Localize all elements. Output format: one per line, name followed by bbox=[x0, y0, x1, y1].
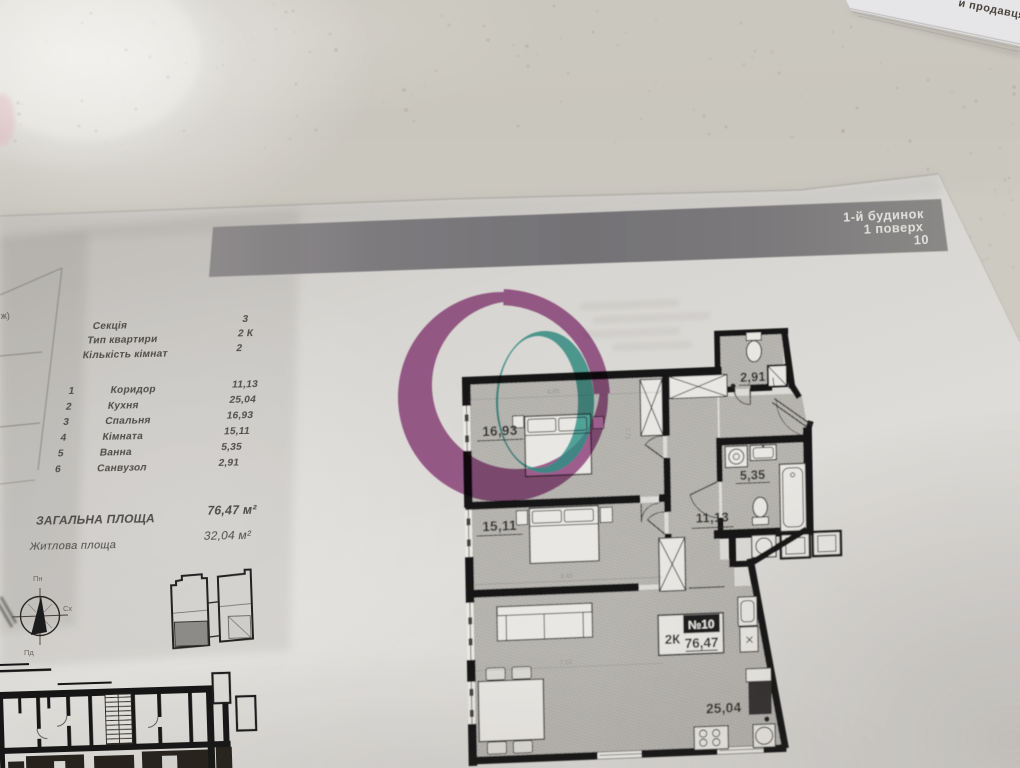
svg-text:Житлова площа: Житлова площа bbox=[29, 539, 118, 553]
svg-text:5,35: 5,35 bbox=[220, 442, 243, 453]
svg-text:Спальня: Спальня bbox=[104, 415, 151, 427]
svg-text:Кількість кімнат: Кількість кімнат bbox=[82, 349, 169, 362]
svg-text:76,47 м²: 76,47 м² bbox=[206, 503, 258, 518]
svg-text:ЗАГАЛЬНА ПЛОЩА: ЗАГАЛЬНА ПЛОЩА bbox=[35, 511, 156, 527]
svg-text:2,91: 2,91 bbox=[218, 457, 241, 468]
svg-text:32,04 м²: 32,04 м² bbox=[203, 528, 253, 543]
svg-text:Коридор: Коридор bbox=[110, 384, 157, 396]
svg-text:Пн: Пн bbox=[33, 574, 43, 583]
svg-text:11,13: 11,13 bbox=[231, 379, 259, 390]
svg-text:Секція: Секція bbox=[92, 321, 128, 333]
svg-text:25,04: 25,04 bbox=[228, 395, 256, 406]
svg-text:16,93: 16,93 bbox=[226, 410, 254, 421]
svg-text:Кімната: Кімната bbox=[102, 431, 144, 443]
svg-text:2,71: 2,71 bbox=[624, 427, 631, 440]
svg-text:Тип квартири: Тип квартири bbox=[86, 334, 158, 346]
svg-text:3,45: 3,45 bbox=[560, 573, 573, 581]
svg-text:Ванна: Ванна bbox=[99, 447, 133, 459]
svg-text:2,91: 2,91 bbox=[740, 370, 766, 385]
svg-text:Пд: Пд bbox=[24, 648, 34, 657]
svg-text:Кухня: Кухня bbox=[107, 400, 140, 412]
svg-text:2 К: 2 К bbox=[237, 328, 255, 339]
svg-text:15,11: 15,11 bbox=[482, 518, 517, 534]
svg-text:Санвузол: Санвузол bbox=[96, 462, 148, 474]
svg-text:Сх: Сх bbox=[63, 604, 72, 613]
svg-text:15,11: 15,11 bbox=[223, 426, 251, 437]
svg-text:10: 10 bbox=[913, 232, 929, 248]
svg-text:4,05: 4,05 bbox=[547, 388, 560, 396]
